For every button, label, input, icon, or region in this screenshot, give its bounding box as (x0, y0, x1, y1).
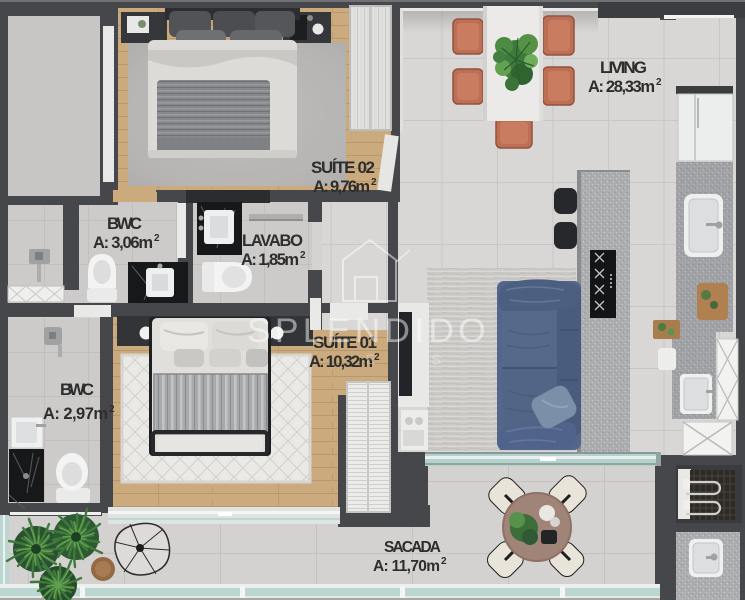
svg-text:LAVABO: LAVABO (242, 232, 303, 250)
svg-text:2: 2 (371, 177, 377, 188)
svg-text:A: 28,33m: A: 28,33m (588, 78, 655, 96)
svg-text:A: 3,06m: A: 3,06m (93, 234, 153, 252)
svg-text:SUÍTE 02: SUÍTE 02 (311, 158, 375, 177)
svg-text:2: 2 (656, 77, 662, 88)
svg-text:2: 2 (441, 556, 447, 567)
svg-text:SPLENDIDO: SPLENDIDO (247, 312, 490, 350)
svg-text:LIVING: LIVING (600, 58, 647, 77)
svg-text:A: 9,76m: A: 9,76m (313, 178, 370, 196)
svg-text:BWC: BWC (107, 214, 142, 233)
svg-text:A: 11,70m: A: 11,70m (373, 558, 440, 575)
svg-text:A: 10,32m: A: 10,32m (309, 353, 373, 371)
svg-text:A: 2,97m: A: 2,97m (43, 405, 108, 423)
svg-text:A: 1,85m: A: 1,85m (241, 251, 299, 269)
svg-text:2: 2 (154, 233, 160, 244)
svg-text:SACADA: SACADA (384, 539, 441, 556)
svg-text:E S: E S (366, 351, 467, 367)
svg-text:2: 2 (300, 250, 306, 261)
svg-text:BWC: BWC (60, 380, 94, 399)
svg-text:2: 2 (109, 404, 115, 415)
